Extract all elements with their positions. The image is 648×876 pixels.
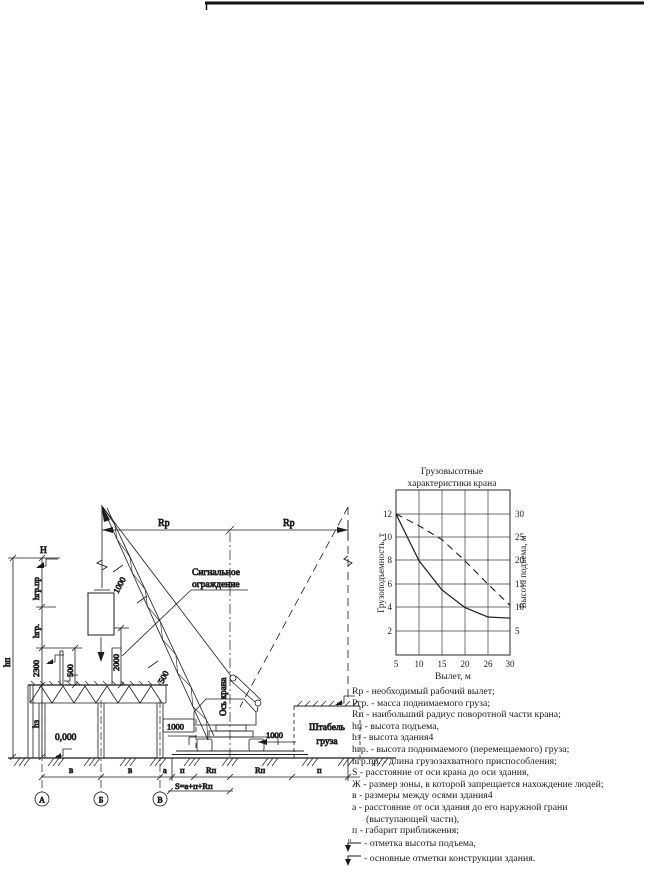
legend-item: hгр. - высота поднимаемого (перемещаемог… bbox=[352, 744, 610, 756]
dim-label-hp: hп bbox=[2, 658, 12, 668]
dim-label-2000: 2000 bbox=[111, 654, 121, 671]
axis-bubble-v: В bbox=[157, 796, 162, 805]
stack-label-2: груза bbox=[316, 737, 338, 747]
legend-item: hз - высота здания4 bbox=[352, 732, 610, 744]
legend-item-mark: н - отметка высоты подъема, bbox=[342, 837, 610, 852]
axis-bubble-b: Б bbox=[99, 796, 104, 805]
dim-label-1000-left: 1000 bbox=[167, 722, 184, 732]
notation-legend: Rp - необходимый рабочий вылет; Ргр. - м… bbox=[352, 686, 610, 867]
legend-item: Ж - размер зоны, в которой запрещается н… bbox=[352, 779, 610, 791]
legend-item: hп - высота подъема, bbox=[352, 721, 610, 733]
legend-item: Rп - наибольший радиус поворотной части … bbox=[352, 709, 610, 721]
dim-label-1000-right: 1000 bbox=[266, 730, 283, 740]
chart-xlabel: Вылет, м bbox=[435, 672, 471, 682]
legend-item: Rp - необходимый рабочий вылет; bbox=[352, 686, 610, 698]
svg-text:20: 20 bbox=[461, 659, 471, 669]
building-section bbox=[28, 685, 168, 792]
chart-grid bbox=[396, 490, 510, 655]
boom-chord-outer bbox=[102, 506, 208, 740]
svg-text:10: 10 bbox=[415, 659, 425, 669]
dim-label-hz: hз bbox=[31, 720, 41, 729]
chart-ylabel-left: Грузоподъемность, т bbox=[376, 533, 386, 613]
svg-text:2: 2 bbox=[388, 626, 393, 636]
rp-dimension bbox=[102, 521, 348, 540]
stack-top-hatch bbox=[297, 701, 358, 706]
signal-fence-label-2: ограждение bbox=[192, 580, 240, 590]
dim-label-rp1: Rп bbox=[206, 765, 217, 775]
dim-label-p2: п bbox=[317, 765, 322, 775]
boom-hoist-strut bbox=[230, 675, 261, 712]
legend-item: в - размеры между осями здания4 bbox=[352, 790, 610, 802]
dim-label-rp-right: Rp bbox=[283, 518, 295, 529]
elevation-height-mark-icon: н bbox=[342, 837, 362, 852]
legend-item: а - расстояние от оси здания до его нару… bbox=[352, 802, 610, 825]
load-height-chart: Грузовысотные характеристики крана 12 10… bbox=[376, 467, 528, 682]
svg-text:5: 5 bbox=[394, 659, 399, 669]
legend-item: S - расстояние от оси крана до оси здани… bbox=[352, 767, 610, 779]
dim-label-p1: п bbox=[180, 765, 185, 775]
dim-label-rp-left: Rp bbox=[158, 518, 170, 529]
svg-text:8: 8 bbox=[388, 555, 393, 565]
chart-title-1: Грузовысотные bbox=[421, 467, 483, 477]
dim-label-v1: в bbox=[69, 765, 73, 775]
crane-undercarriage bbox=[172, 725, 308, 755]
svg-text:30: 30 bbox=[515, 509, 525, 519]
dim-label-rp2: Rп bbox=[255, 765, 266, 775]
dim-label-hgr: hгр. bbox=[31, 624, 41, 638]
dim-tick bbox=[113, 565, 123, 572]
svg-text:12: 12 bbox=[383, 509, 392, 519]
crane-elevation-drawing: Rp Rp 1000 500 Сигнальное ограждение bbox=[2, 504, 396, 806]
chart-tick-labels: 12 10 8 6 4 2 30 25 20 15 10 5 5 10 15 2… bbox=[383, 509, 525, 669]
hook-height-label: Н bbox=[40, 546, 47, 556]
legend-item-mark: - основные отметки конструкции здания. bbox=[342, 852, 610, 867]
scanned-document-page: Rp Rp 1000 500 Сигнальное ограждение bbox=[0, 0, 648, 876]
svg-text:6: 6 bbox=[388, 579, 393, 589]
zero-level-mark bbox=[54, 749, 72, 758]
dim-label-1000-boom: 1000 bbox=[111, 575, 128, 595]
svg-text:30: 30 bbox=[506, 659, 516, 669]
axis-bubble-a: А bbox=[39, 796, 45, 805]
chart-ylabel-right: Высота подъема, м bbox=[518, 535, 528, 608]
dim-label-2300: 2300 bbox=[31, 660, 41, 677]
boom-far-position bbox=[240, 507, 352, 707]
dim-label-hgr-pr: hгр.пр bbox=[31, 577, 41, 600]
legend-item: п - габарит приближения; bbox=[352, 825, 610, 837]
zero-level-label: 0,000 bbox=[55, 733, 77, 743]
svg-text:4: 4 bbox=[388, 602, 393, 612]
stack-label-1: Штабель bbox=[309, 722, 346, 733]
capacity-curve bbox=[396, 514, 510, 618]
dim-label-a: а bbox=[163, 765, 167, 775]
building-elevation-mark-icon bbox=[342, 852, 362, 867]
chart-title-2: характеристики крана bbox=[408, 479, 498, 489]
s-formula-label: S=а+п+Rп bbox=[175, 781, 213, 791]
svg-text:26: 26 bbox=[484, 659, 494, 669]
svg-text:5: 5 bbox=[515, 626, 520, 636]
signal-fence-label-1: Сигнальное bbox=[192, 568, 240, 578]
dim-tick bbox=[148, 661, 158, 668]
legend-item: Ргр. - масса поднимаемого груза; bbox=[352, 698, 610, 710]
dim-label-v2: в bbox=[128, 765, 132, 775]
top-rule bbox=[205, 3, 644, 10]
crane-axis-label: Ось крана bbox=[218, 677, 228, 716]
legend-item: hгр.пр. - длина грузозахватного приспосо… bbox=[352, 756, 610, 768]
svg-text:15: 15 bbox=[438, 659, 448, 669]
